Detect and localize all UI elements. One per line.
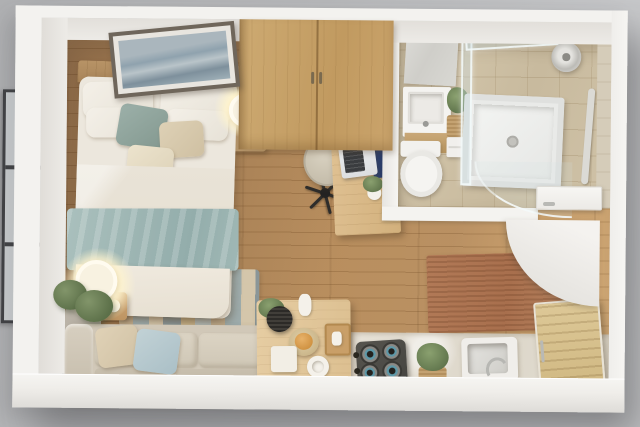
fruit <box>295 333 313 350</box>
wall-bottom <box>12 373 624 412</box>
apartment-shell <box>12 5 627 412</box>
sink-faucet-dot <box>423 121 429 127</box>
glass-shower-screen <box>460 39 472 185</box>
wall-left-inner-face <box>39 18 68 374</box>
kitchen-sink <box>461 337 518 382</box>
cup <box>312 361 324 373</box>
wardrobe-handle <box>311 72 314 84</box>
white-storage-box <box>271 346 297 372</box>
white-vase <box>298 294 311 316</box>
bathroom-side-tiles <box>596 44 611 208</box>
cooktop-knob <box>354 368 360 374</box>
art-image <box>118 31 230 89</box>
apartment-floor-plan-render <box>0 0 640 427</box>
wall-right <box>608 11 628 413</box>
vanity-sink <box>403 87 451 137</box>
herb-plant <box>417 343 449 371</box>
sofa-pillow-blue <box>132 328 181 375</box>
wall-left <box>12 5 42 407</box>
black-plant-pot <box>266 306 292 332</box>
laptop-keyboard <box>342 147 365 173</box>
framed-seascape-art <box>108 21 240 99</box>
wardrobe-handle <box>319 72 322 84</box>
tall-potted-plant-leaves <box>75 290 113 322</box>
chair-hub <box>320 188 330 198</box>
burner <box>384 343 400 359</box>
round-shower-head <box>551 42 581 72</box>
cooktop-knob <box>353 352 359 358</box>
wardrobe-door-gap <box>316 20 319 150</box>
built-in-wardrobe <box>239 19 394 150</box>
cup-and-dish <box>307 356 329 378</box>
wood-serving-tray <box>325 323 351 355</box>
burner <box>362 346 379 363</box>
art-mat <box>113 25 236 94</box>
sink-basin <box>408 92 444 124</box>
cabinet-handle <box>540 340 545 362</box>
entry-door-slab <box>536 186 602 211</box>
tray-item <box>332 332 342 346</box>
toilet <box>400 151 442 197</box>
door-handle <box>543 202 555 206</box>
wardrobe-shadow <box>239 19 250 149</box>
